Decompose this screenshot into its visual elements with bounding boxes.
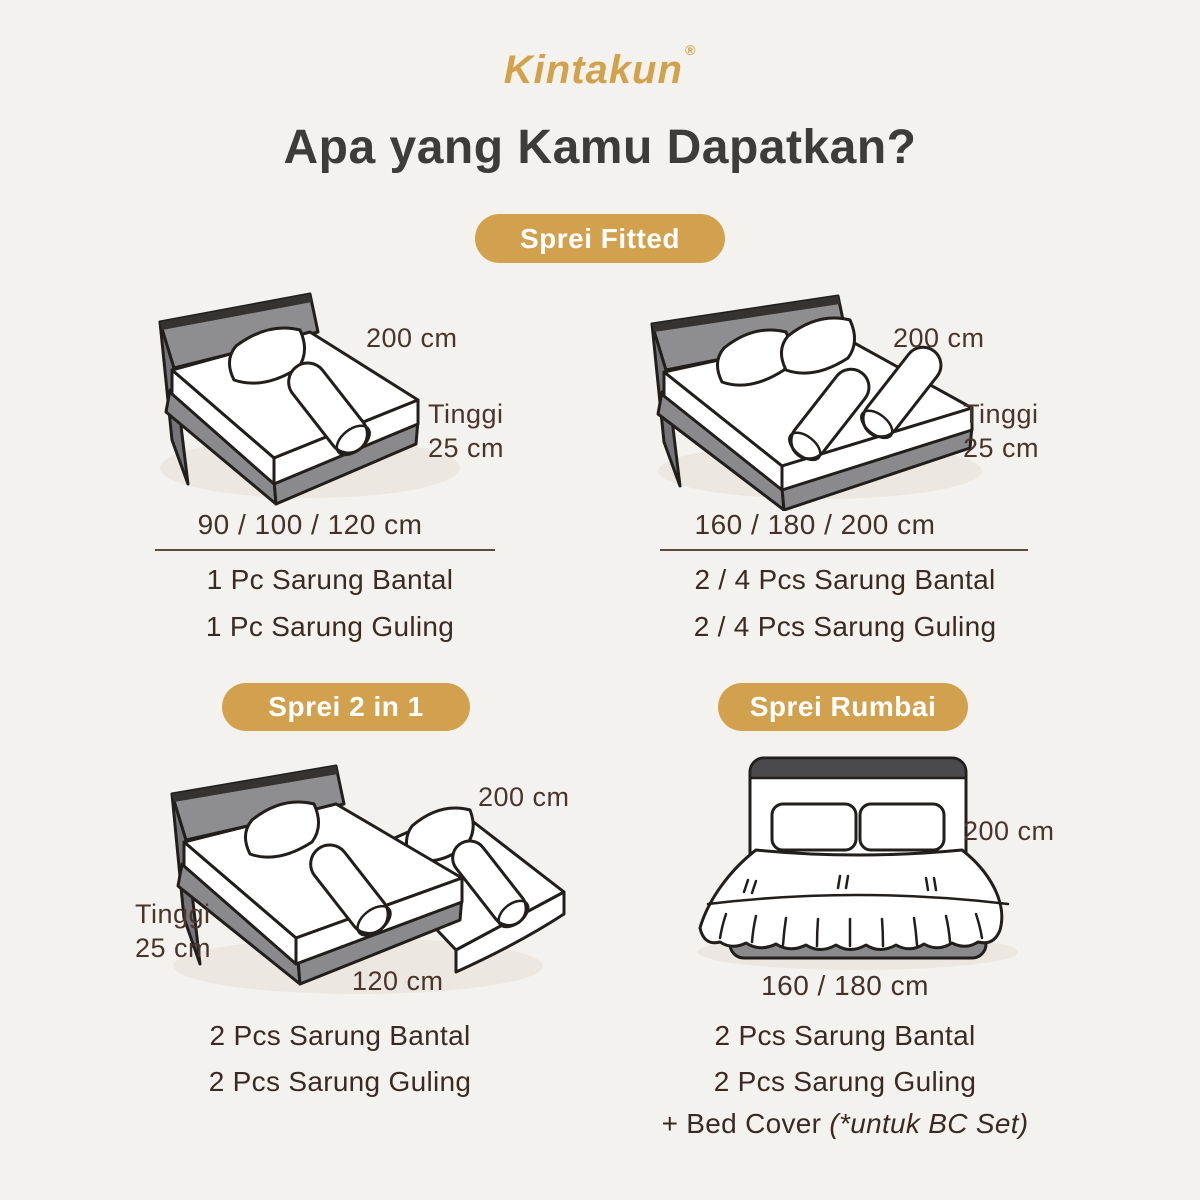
infographic-canvas: Kintakun® Apa yang Kamu Dapatkan? Sprei … [0,0,1200,1200]
fitted-single-width-label: 200 cm [366,321,458,355]
rumbai-item-2: 2 Pcs Sarung Guling [665,1065,1025,1099]
pillow [772,804,856,850]
fitted-double-height-label: Tinggi25 cm [963,397,1039,465]
registered-mark: ® [685,42,696,58]
divider-line [660,549,1028,551]
fitted-single-item-1: 1 Pc Sarung Bantal [150,563,510,597]
pillow [860,804,944,850]
two-in-one-height-label: Tinggi25 cm [135,897,211,965]
rumbai-width-label: 200 cm [963,814,1055,848]
brand-logo-text: Kintakun [504,48,683,92]
rumbai-bed-illustration [678,752,1038,972]
fitted-single-item-2: 1 Pc Sarung Guling [150,610,510,644]
fitted-double-width-label: 200 cm [893,321,985,355]
badge-sprei-rumbai: Sprei Rumbai [718,683,968,731]
divider-line [155,549,495,551]
brand-logo: Kintakun® [0,42,1200,93]
rumbai-item-1: 2 Pcs Sarung Bantal [665,1019,1025,1053]
two-in-one-item-1: 2 Pcs Sarung Bantal [160,1019,520,1053]
rumbai-bottom-label: 160 / 180 cm [665,970,1025,1002]
two-in-one-item-2: 2 Pcs Sarung Guling [160,1065,520,1099]
rumbai-extra-item: + Bed Cover (*untuk BC Set) [640,1107,1050,1141]
two-in-one-bottom-label: 120 cm [352,964,444,998]
fitted-double-item-1: 2 / 4 Pcs Sarung Bantal [665,563,1025,597]
fitted-single-height-label: Tinggi25 cm [428,397,504,465]
page-title: Apa yang Kamu Dapatkan? [0,120,1200,175]
badge-sprei-fitted: Sprei Fitted [475,214,725,263]
fitted-double-item-2: 2 / 4 Pcs Sarung Guling [665,610,1025,644]
double-bed-illustration [640,286,1010,511]
fitted-single-sizes: 90 / 100 / 120 cm [130,509,490,541]
fitted-double-sizes: 160 / 180 / 200 cm [635,509,995,541]
two-in-one-width-label: 200 cm [478,780,570,814]
badge-sprei-2in1: Sprei 2 in 1 [222,683,470,731]
